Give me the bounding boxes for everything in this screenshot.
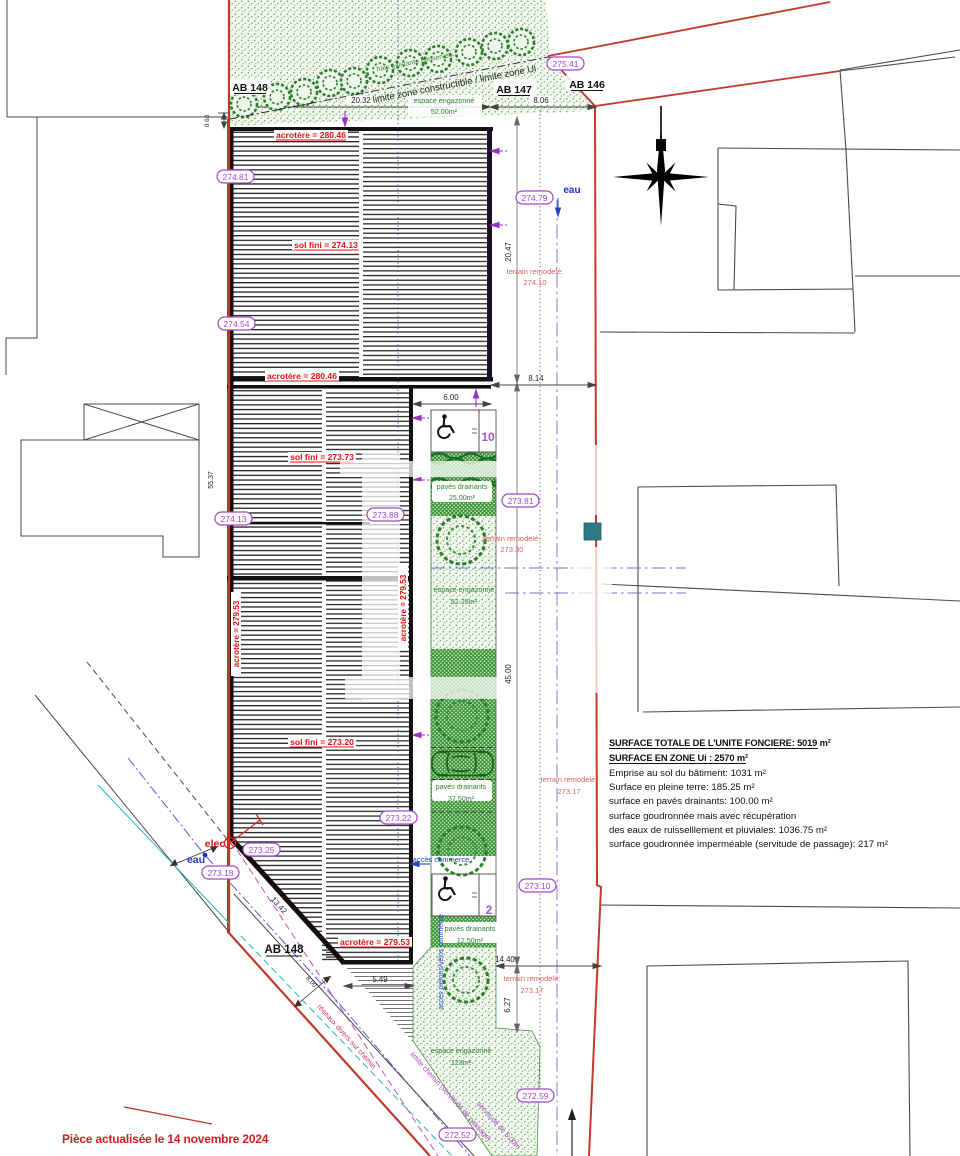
- svg-text:SURFACE TOTALE DE L'UNITE FONC: SURFACE TOTALE DE L'UNITE FONCIERE: 5019…: [609, 738, 831, 748]
- svg-text:273.88: 273.88: [373, 510, 399, 520]
- svg-text:SURFACE EN ZONE Ui : 2570 m²: SURFACE EN ZONE Ui : 2570 m²: [609, 753, 748, 763]
- svg-text:terrain remodelé:: terrain remodelé:: [507, 267, 564, 276]
- svg-text:AB 147: AB 147: [496, 84, 532, 96]
- svg-text:123m²: 123m²: [451, 1058, 472, 1067]
- svg-text:5.49: 5.49: [372, 975, 387, 984]
- svg-text:272.59: 272.59: [523, 1091, 549, 1101]
- svg-text:espace engazonné: espace engazonné: [414, 96, 475, 105]
- svg-text:274.10: 274.10: [524, 278, 547, 287]
- svg-text:Pièce actualisée le 14 novembr: Pièce actualisée le 14 novembre 2024: [62, 1132, 269, 1146]
- svg-text:273.10: 273.10: [525, 881, 551, 891]
- svg-text:sol fini = 273.73: sol fini = 273.73: [290, 452, 354, 462]
- svg-text:52.25m²: 52.25m²: [451, 597, 478, 606]
- svg-text:acrotère = 280.46: acrotère = 280.46: [276, 130, 346, 140]
- svg-text:273.18: 273.18: [208, 868, 234, 878]
- svg-text:surface en pavés drainants: 10: surface en pavés drainants: 100.00 m²: [609, 796, 774, 807]
- svg-text:acrotère = 279.53: acrotère = 279.53: [340, 937, 410, 947]
- svg-text:273.25: 273.25: [249, 845, 275, 855]
- svg-text:52.00m²: 52.00m²: [431, 107, 458, 116]
- svg-text:Surface en pleine terre: 185.2: Surface en pleine terre: 185.25 m²: [609, 782, 755, 793]
- svg-text:0.63: 0.63: [204, 114, 211, 127]
- svg-text:8.06: 8.06: [533, 96, 548, 105]
- svg-text:eau: eau: [563, 185, 580, 196]
- svg-text:274.54: 274.54: [224, 319, 250, 329]
- svg-text:20.32: 20.32: [351, 96, 371, 105]
- svg-text:10: 10: [481, 430, 495, 444]
- svg-text:273.81: 273.81: [508, 496, 534, 506]
- svg-text:terrain remodelé:: terrain remodelé:: [484, 534, 541, 543]
- svg-text:55.37: 55.37: [208, 471, 215, 489]
- svg-text:acrotère = 280.46: acrotère = 280.46: [267, 371, 337, 381]
- svg-text:espace engazonné: espace engazonné: [434, 585, 495, 594]
- svg-text:surface goudronnée imperméable: surface goudronnée imperméable (servitud…: [609, 839, 889, 850]
- svg-text:terrain remodelé:: terrain remodelé:: [541, 775, 598, 784]
- svg-text:Emprise au sol du bâtiment: 10: Emprise au sol du bâtiment: 1031 m²: [609, 768, 767, 779]
- svg-text:274.81: 274.81: [223, 172, 249, 182]
- svg-text:275.41: 275.41: [553, 59, 579, 69]
- svg-text:accès commerce: accès commerce: [413, 855, 470, 864]
- svg-text:25.00m²: 25.00m²: [449, 493, 476, 502]
- svg-text:sol fini = 274.13: sol fini = 274.13: [294, 240, 358, 250]
- svg-text:6.00: 6.00: [443, 393, 459, 402]
- svg-text:eau: eau: [187, 854, 205, 866]
- svg-text:sol fini = 273.20: sol fini = 273.20: [290, 737, 354, 747]
- svg-text:273.30: 273.30: [501, 545, 524, 554]
- svg-text:acrotère = 279.53: acrotère = 279.53: [232, 600, 241, 667]
- svg-text:20.47: 20.47: [504, 242, 513, 262]
- svg-text:surface goudronnée mais avec r: surface goudronnée mais avec récupératio…: [609, 811, 796, 822]
- svg-text:accès piétons/vélos commerce: accès piétons/vélos commerce: [438, 914, 445, 1010]
- svg-text:45.00: 45.00: [504, 664, 513, 684]
- svg-text:273.22: 273.22: [386, 813, 412, 823]
- svg-text:12.50m²: 12.50m²: [457, 936, 484, 945]
- svg-text:272.52: 272.52: [445, 1130, 471, 1140]
- svg-text:273.17: 273.17: [558, 787, 581, 796]
- svg-text:AB 148: AB 148: [232, 82, 268, 94]
- svg-text:37.50m²: 37.50m²: [448, 794, 475, 803]
- svg-text:AB 148: AB 148: [265, 944, 305, 956]
- svg-text:des eaux de ruisselllement et: des eaux de ruisselllement et pluviales:…: [609, 825, 828, 836]
- svg-text:6.27: 6.27: [503, 997, 512, 1012]
- svg-text:espace engazonné: espace engazonné: [431, 1046, 492, 1055]
- svg-text:2: 2: [486, 903, 493, 917]
- svg-text:273.17: 273.17: [521, 986, 544, 995]
- svg-text:274.13: 274.13: [221, 514, 247, 524]
- svg-text:14.40: 14.40: [495, 955, 515, 964]
- svg-text:pavés drainants: pavés drainants: [445, 924, 496, 933]
- svg-text:AB 146: AB 146: [569, 79, 605, 91]
- svg-text:elec: elec: [205, 838, 226, 850]
- svg-text:pavés drainants: pavés drainants: [436, 782, 487, 791]
- svg-text:terrain remodelé:: terrain remodelé:: [504, 974, 561, 983]
- svg-text:274.79: 274.79: [522, 193, 548, 203]
- svg-text:pavés drainants: pavés drainants: [437, 482, 488, 491]
- svg-text:8.14: 8.14: [528, 374, 544, 383]
- svg-text:acrotère = 279.53: acrotère = 279.53: [399, 574, 408, 641]
